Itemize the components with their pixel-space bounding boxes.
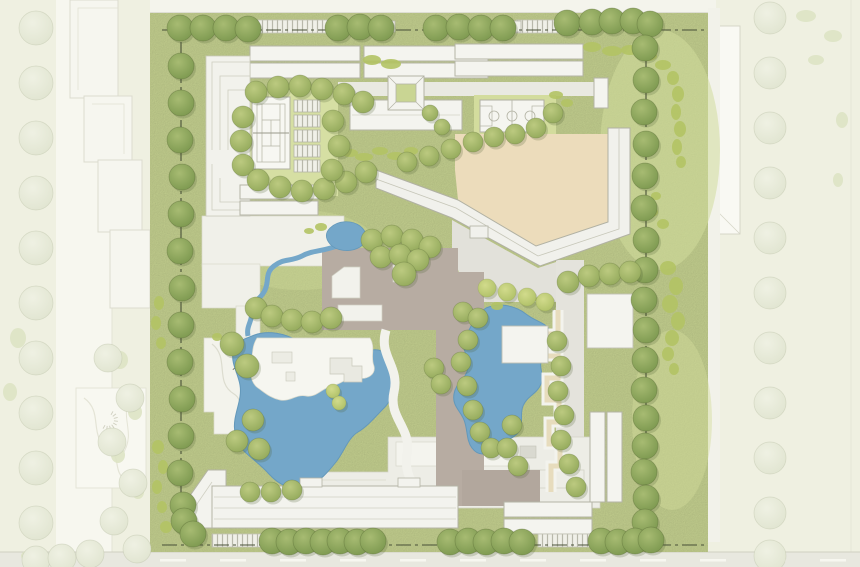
building-slab bbox=[455, 44, 583, 59]
perimeter-tree bbox=[168, 423, 194, 449]
garden-tree bbox=[322, 110, 344, 132]
shrub bbox=[157, 501, 167, 513]
perimeter-tree bbox=[632, 433, 658, 459]
perimeter-tree bbox=[190, 15, 216, 41]
shrub bbox=[657, 219, 669, 229]
street-south-lane-markings bbox=[340, 559, 366, 562]
context-faded-tree bbox=[19, 396, 53, 430]
perimeter-tree bbox=[167, 127, 193, 153]
shrub bbox=[304, 228, 314, 234]
garden-tree bbox=[566, 477, 586, 497]
context-faded-tree bbox=[76, 540, 104, 567]
garden-tree bbox=[269, 176, 291, 198]
perimeter-tree bbox=[169, 275, 195, 301]
garden-tree bbox=[548, 381, 568, 401]
context-faded-tree bbox=[754, 277, 786, 309]
pavilion-square bbox=[587, 294, 633, 348]
perimeter-tree bbox=[554, 10, 580, 36]
garden-tree bbox=[261, 482, 281, 502]
perimeter-tree bbox=[631, 459, 657, 485]
context-faded-shrub bbox=[3, 383, 17, 401]
context-faded-shrub bbox=[836, 112, 848, 128]
context-faded-tree bbox=[19, 341, 53, 375]
context-faded-tree bbox=[19, 231, 53, 265]
perimeter-tree bbox=[632, 163, 658, 189]
perimeter-tree bbox=[631, 377, 657, 403]
garden-tree bbox=[468, 308, 488, 328]
garden-tree bbox=[267, 76, 289, 98]
shrub bbox=[152, 480, 162, 494]
perimeter-tree bbox=[632, 35, 658, 61]
garden-tree bbox=[441, 139, 461, 159]
context-faded-tree bbox=[754, 332, 786, 364]
building-slab bbox=[504, 502, 592, 517]
garden-tree bbox=[422, 105, 438, 121]
context-faded-tree bbox=[754, 442, 786, 474]
plan-root bbox=[0, 0, 860, 567]
pavilion-courtyard-inner bbox=[396, 84, 416, 102]
garden-tree bbox=[226, 430, 248, 452]
garden-tree bbox=[397, 152, 417, 172]
context-faded-tree bbox=[119, 469, 147, 497]
context-building-west bbox=[84, 96, 132, 162]
light-tree bbox=[536, 293, 554, 311]
perimeter-tree bbox=[235, 16, 261, 42]
street-south-lane-markings bbox=[700, 559, 726, 562]
shrub bbox=[662, 295, 678, 313]
shrub bbox=[667, 71, 679, 85]
perimeter-tree bbox=[633, 317, 659, 343]
building-slab bbox=[455, 61, 583, 76]
path-upper bbox=[338, 82, 606, 96]
site-plan bbox=[0, 0, 860, 567]
garden-tree bbox=[508, 456, 528, 476]
perimeter-tree bbox=[633, 67, 659, 93]
perimeter-tree bbox=[637, 11, 663, 37]
context-faded-tree bbox=[754, 57, 786, 89]
context-faded-tree bbox=[754, 222, 786, 254]
garden-tree bbox=[289, 75, 311, 97]
context-faded-tree bbox=[754, 112, 786, 144]
garden-tree bbox=[526, 118, 546, 138]
garden-tree bbox=[559, 454, 579, 474]
context-faded-tree bbox=[19, 286, 53, 320]
garden-tree bbox=[261, 305, 283, 327]
shrub bbox=[674, 121, 686, 137]
context-faded-tree bbox=[754, 2, 786, 34]
shrub bbox=[671, 104, 681, 120]
shrub bbox=[151, 316, 161, 330]
garden-tree bbox=[355, 161, 377, 183]
garden-tree bbox=[554, 405, 574, 425]
context-building-west bbox=[110, 230, 150, 308]
light-tree bbox=[478, 279, 496, 297]
shrub bbox=[355, 153, 373, 161]
perimeter-tree bbox=[167, 15, 193, 41]
garden-tree bbox=[248, 438, 270, 460]
perimeter-tree bbox=[633, 227, 659, 253]
street-south-lane-markings bbox=[280, 559, 306, 562]
garden-tree bbox=[281, 309, 303, 331]
context-faded-shrub bbox=[808, 55, 824, 65]
shrub bbox=[665, 330, 679, 346]
shrub bbox=[156, 337, 166, 349]
pergola bbox=[294, 130, 320, 142]
garden-tree bbox=[328, 135, 350, 157]
shrub bbox=[669, 277, 683, 295]
context-faded-tree bbox=[100, 507, 128, 535]
perimeter-tree bbox=[631, 287, 657, 313]
light-tree bbox=[332, 396, 346, 410]
garden-tree bbox=[247, 169, 269, 191]
pergola bbox=[294, 100, 320, 112]
perimeter-tree bbox=[631, 99, 657, 125]
garden-tree bbox=[301, 311, 323, 333]
shrub bbox=[160, 521, 172, 533]
garden-tree bbox=[291, 180, 313, 202]
garden-tree bbox=[458, 330, 478, 350]
pergola bbox=[294, 160, 320, 172]
street-south-lane-markings bbox=[220, 559, 246, 562]
shrub bbox=[655, 60, 671, 70]
light-tree bbox=[498, 283, 516, 301]
context-faded-tree bbox=[754, 497, 786, 529]
context-faded-shrub bbox=[833, 173, 843, 187]
shrub bbox=[672, 86, 684, 102]
pavilion bbox=[338, 305, 382, 321]
perimeter-tree bbox=[169, 386, 195, 412]
light-tree bbox=[518, 288, 536, 306]
building-slab-vertical bbox=[590, 412, 605, 502]
garden-tree bbox=[370, 246, 392, 268]
perimeter-tree bbox=[167, 238, 193, 264]
street-south-lane-markings bbox=[460, 559, 486, 562]
garden-tree bbox=[235, 354, 259, 378]
garden-tree bbox=[578, 265, 600, 287]
garden-tree bbox=[619, 261, 641, 283]
garden-tree bbox=[352, 91, 374, 113]
perimeter-tree bbox=[168, 201, 194, 227]
island-building bbox=[272, 352, 292, 363]
garden-tree bbox=[434, 119, 450, 135]
context-playground-steps bbox=[114, 421, 118, 422]
island-building bbox=[286, 372, 295, 381]
context-faded-tree bbox=[116, 384, 144, 412]
garden-tree bbox=[551, 356, 571, 376]
garden-tree bbox=[497, 438, 517, 458]
context-faded-tree bbox=[19, 66, 53, 100]
street-south-lane-markings bbox=[520, 559, 546, 562]
perimeter-tree bbox=[633, 131, 659, 157]
shrub bbox=[154, 296, 164, 310]
garden-tree bbox=[557, 271, 579, 293]
street-south-lane-markings bbox=[160, 559, 186, 562]
context-building-west bbox=[98, 160, 142, 232]
shrub bbox=[561, 99, 573, 107]
shrub bbox=[372, 147, 388, 155]
context-faded-shrub bbox=[10, 328, 26, 348]
shrub bbox=[669, 363, 679, 375]
pond-source bbox=[326, 222, 366, 251]
perimeter-tree bbox=[167, 349, 193, 375]
perimeter-tree bbox=[180, 521, 206, 547]
context-faded-tree bbox=[754, 387, 786, 419]
context-faded-shrub bbox=[824, 30, 842, 42]
perimeter-tree bbox=[631, 195, 657, 221]
context-faded-tree bbox=[94, 344, 122, 372]
pavilion-square bbox=[502, 326, 548, 363]
garden-tree bbox=[543, 103, 563, 123]
garden-tree bbox=[599, 263, 621, 285]
shrub bbox=[549, 91, 563, 99]
garden-tree bbox=[232, 106, 254, 128]
terrace-block bbox=[520, 446, 536, 458]
context-faded-shrub bbox=[796, 10, 816, 22]
garden-tree bbox=[230, 130, 252, 152]
shrub bbox=[671, 312, 685, 330]
garden-tree bbox=[321, 159, 343, 181]
garden-tree bbox=[220, 332, 244, 356]
pergola bbox=[294, 115, 320, 127]
shrub bbox=[381, 59, 401, 69]
garden-tree bbox=[311, 78, 333, 100]
perimeter-tree bbox=[360, 528, 386, 554]
garden-tree bbox=[547, 331, 567, 351]
building-slab bbox=[250, 46, 360, 61]
garden-tree bbox=[551, 430, 571, 450]
shrub bbox=[660, 261, 676, 275]
plaza-taupe-south bbox=[462, 470, 540, 506]
context-building-west bbox=[70, 0, 118, 98]
building-slab-vertical bbox=[607, 412, 622, 502]
perimeter-tree bbox=[169, 164, 195, 190]
building-entry bbox=[398, 478, 420, 487]
building-entry bbox=[300, 478, 322, 487]
garden-tree bbox=[502, 415, 522, 435]
context-faded-tree bbox=[754, 167, 786, 199]
building-slab bbox=[250, 63, 360, 78]
street-south-lane-markings bbox=[640, 559, 666, 562]
shrub bbox=[315, 223, 327, 231]
perimeter-tree bbox=[167, 460, 193, 486]
garden-tree bbox=[463, 400, 483, 420]
perimeter-tree bbox=[423, 15, 449, 41]
context-faded-tree bbox=[98, 428, 126, 456]
street-south-lane-markings bbox=[400, 559, 426, 562]
garden-tree bbox=[431, 374, 451, 394]
shrub bbox=[152, 440, 164, 454]
shrub bbox=[491, 302, 503, 310]
perimeter-tree bbox=[633, 485, 659, 511]
building-entry bbox=[470, 226, 488, 238]
shrub bbox=[672, 139, 682, 155]
perimeter-tree bbox=[509, 529, 535, 555]
street-south-lane-markings bbox=[580, 559, 606, 562]
garden-tree bbox=[245, 81, 267, 103]
perimeter-tree bbox=[633, 405, 659, 431]
pergola bbox=[294, 145, 320, 157]
perimeter-tree bbox=[168, 90, 194, 116]
site-plan-canvas bbox=[0, 0, 860, 567]
perimeter-tree bbox=[368, 15, 394, 41]
shrub bbox=[676, 156, 686, 168]
context-faded-tree bbox=[123, 535, 151, 563]
garden-tree bbox=[451, 352, 471, 372]
garden-tree bbox=[242, 409, 264, 431]
context-faded-tree bbox=[19, 506, 53, 540]
garden-tree bbox=[484, 127, 504, 147]
street-south-lane-markings bbox=[820, 559, 846, 562]
context-faded-tree bbox=[19, 11, 53, 45]
garden-tree bbox=[419, 146, 439, 166]
garden-tree bbox=[505, 124, 525, 144]
shrub bbox=[602, 46, 622, 56]
garden-tree bbox=[240, 482, 260, 502]
context-faded-tree bbox=[19, 176, 53, 210]
garden-tree bbox=[392, 262, 416, 286]
shrub bbox=[363, 55, 381, 65]
perimeter-tree bbox=[638, 527, 664, 553]
context-faded-tree bbox=[19, 451, 53, 485]
shrub bbox=[583, 42, 601, 52]
perimeter-tree bbox=[490, 15, 516, 41]
context-faded-tree bbox=[19, 121, 53, 155]
perimeter-tree bbox=[632, 347, 658, 373]
shrub bbox=[662, 347, 674, 361]
garden-tree bbox=[463, 132, 483, 152]
site-plan-svg bbox=[0, 0, 860, 567]
perimeter-tree bbox=[168, 312, 194, 338]
garden-tree bbox=[320, 307, 342, 329]
garden-tree bbox=[282, 480, 302, 500]
perimeter-tree bbox=[168, 53, 194, 79]
shrub bbox=[158, 460, 168, 474]
building-connector bbox=[594, 78, 608, 108]
garden-tree bbox=[457, 376, 477, 396]
